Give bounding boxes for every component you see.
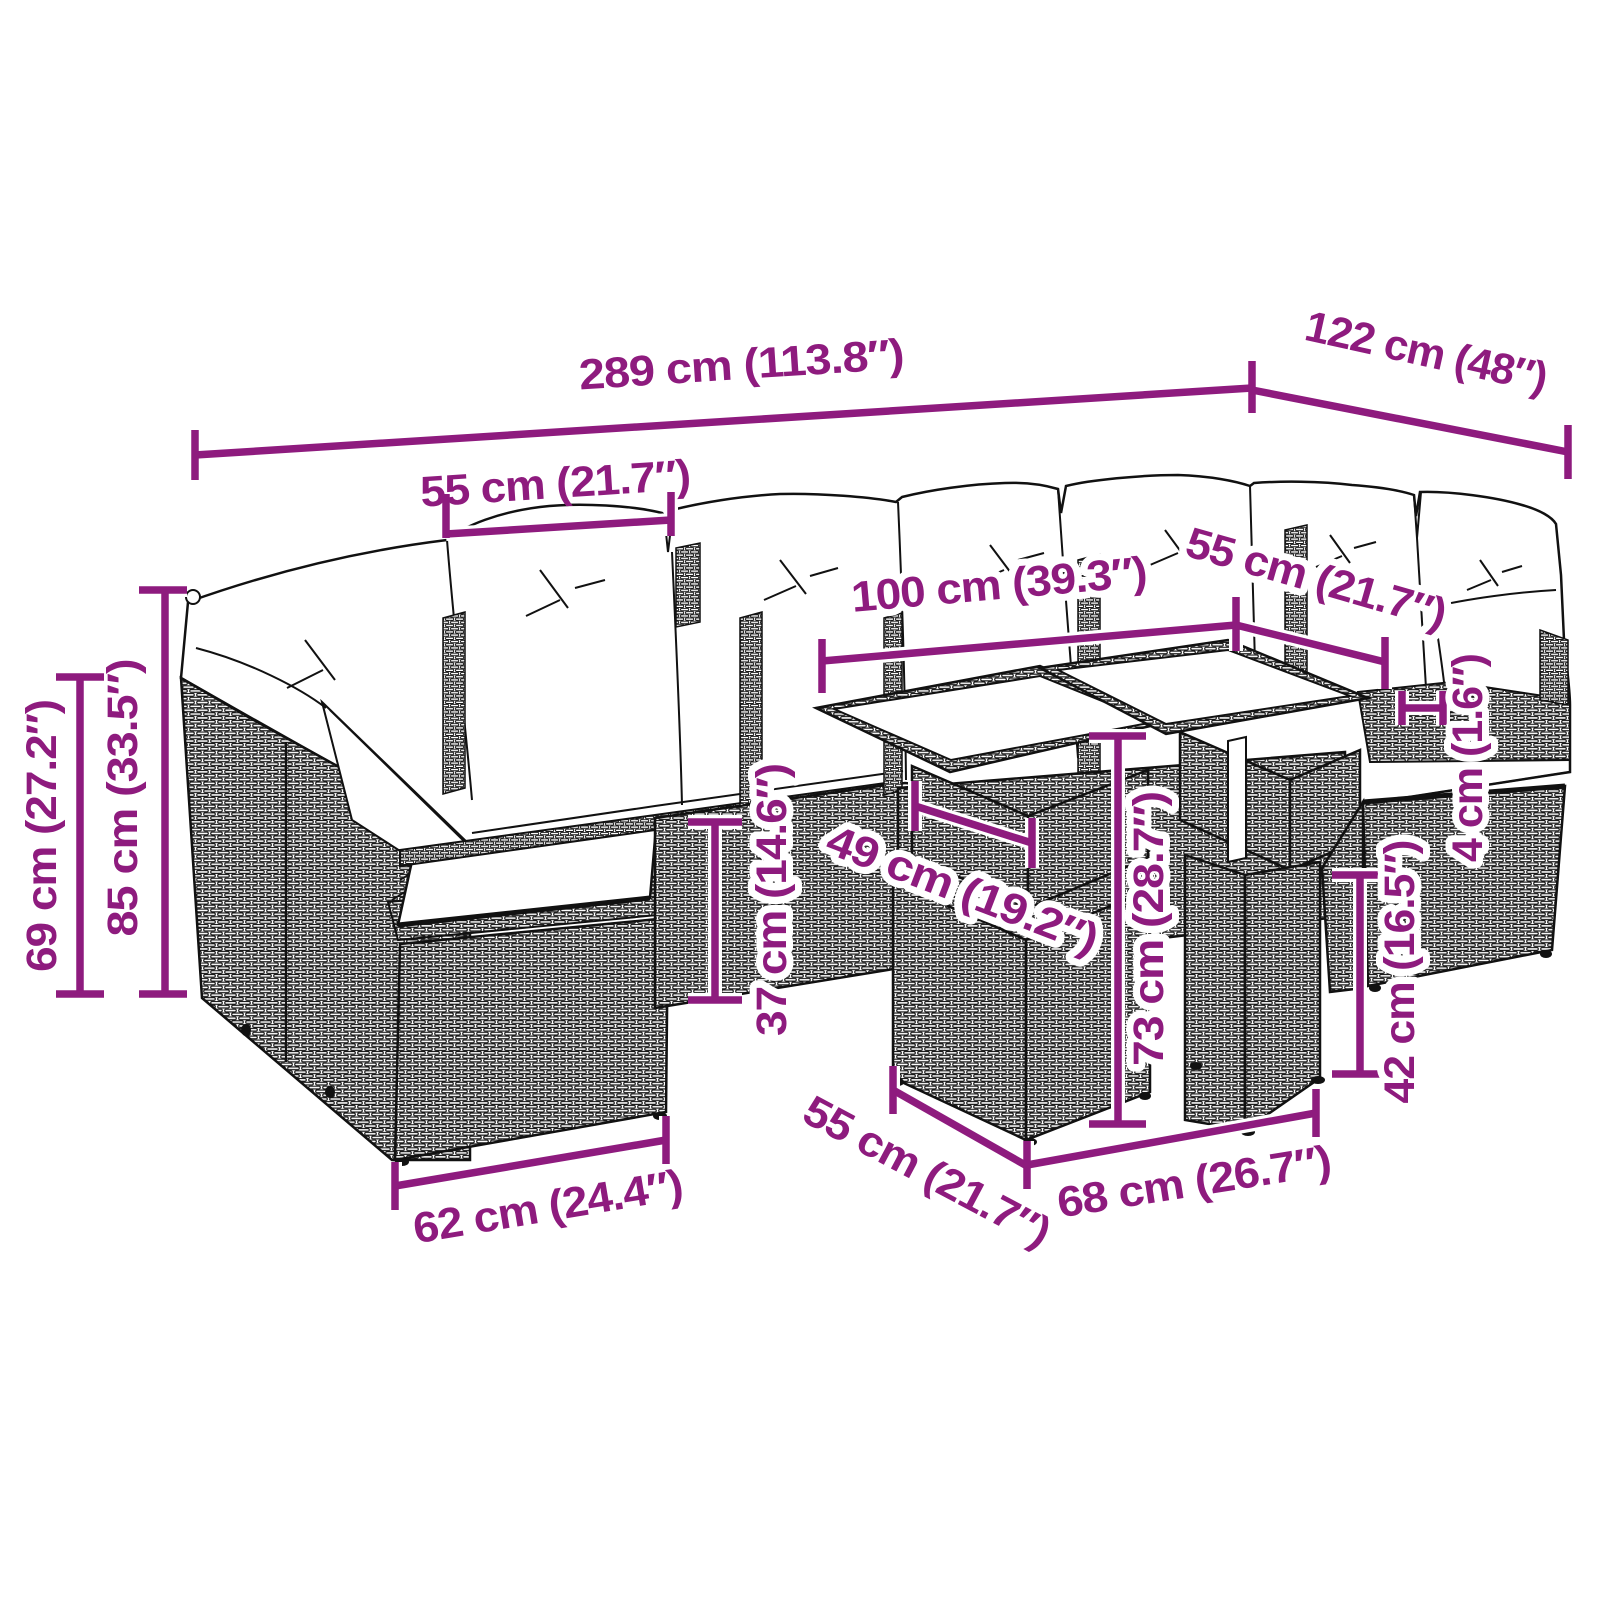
svg-text:85 cm (33.5″): 85 cm (33.5″) [99,660,147,937]
svg-text:37 cm (14.6″): 37 cm (14.6″) [748,764,796,1036]
svg-text:42 cm (16.5″): 42 cm (16.5″) [1376,841,1424,1104]
svg-text:4 cm (1.6″): 4 cm (1.6″) [1444,654,1492,862]
svg-text:73 cm (28.7″): 73 cm (28.7″) [1125,792,1173,1066]
svg-text:69 cm (27.2″): 69 cm (27.2″) [18,700,66,972]
